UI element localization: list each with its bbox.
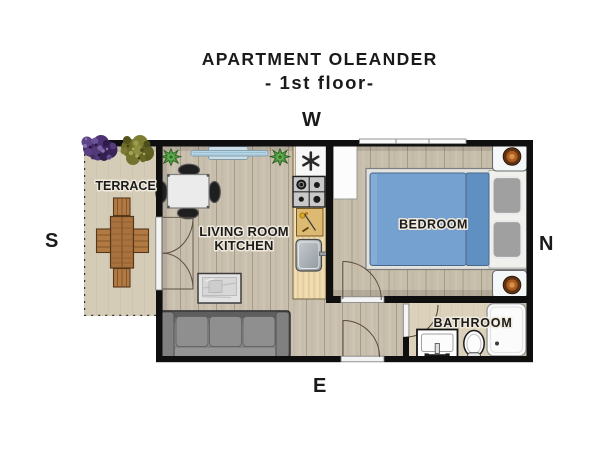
svg-text:BEDROOM: BEDROOM bbox=[399, 217, 468, 231]
svg-text:TERRACE: TERRACE bbox=[95, 179, 155, 193]
svg-text:KITCHEN: KITCHEN bbox=[214, 238, 273, 253]
svg-text:LIVING ROOM: LIVING ROOM bbox=[199, 224, 289, 239]
svg-text:BATHROOM: BATHROOM bbox=[433, 316, 512, 330]
